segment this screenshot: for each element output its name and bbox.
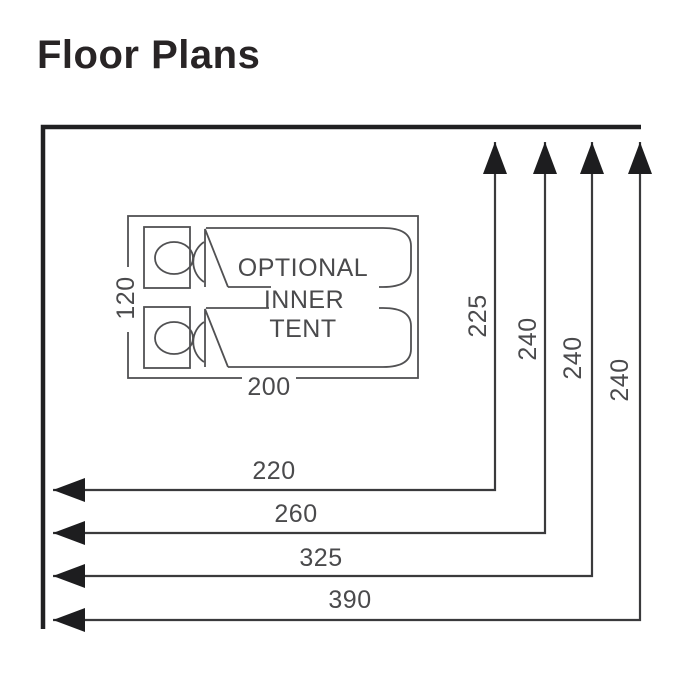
dim-label-horizontal-3: 325	[299, 544, 342, 572]
bed-2-fold	[205, 309, 228, 367]
dim-label-vertical-1: 225	[464, 294, 492, 337]
dim-label-vertical-3: 240	[559, 336, 587, 379]
dim-label-horizontal-1: 220	[252, 457, 295, 485]
bed-1-fold	[205, 229, 228, 287]
dim-label-horizontal-4: 390	[328, 586, 371, 614]
inner-tent-label-line2: INNER	[264, 286, 344, 314]
inner-tent-label-line1: OPTIONAL	[238, 254, 368, 282]
dimension-line-4	[53, 142, 640, 620]
bed-1-shoulder	[193, 242, 204, 282]
dim-label-vertical-2: 240	[514, 317, 542, 360]
bed-2-shoulder	[193, 322, 204, 362]
bed-2-head	[155, 322, 193, 354]
dimension-lines	[53, 142, 640, 620]
floor-plan-diagram: OPTIONAL INNER TENT 120 200 225 240 240 …	[0, 0, 700, 700]
inner-tent-depth-label: 120	[112, 276, 140, 319]
bed-1-pillow	[144, 227, 190, 288]
dim-label-horizontal-2: 260	[274, 500, 317, 528]
inner-tent-width-label: 200	[247, 373, 290, 401]
bed-1-head	[155, 242, 193, 274]
dim-label-vertical-4: 240	[606, 358, 634, 401]
floor-plan-page: Floor Plans	[0, 0, 700, 700]
dimension-line-3	[53, 142, 592, 576]
bed-2-pillow	[144, 307, 190, 368]
inner-tent-label-line3: TENT	[269, 315, 336, 343]
